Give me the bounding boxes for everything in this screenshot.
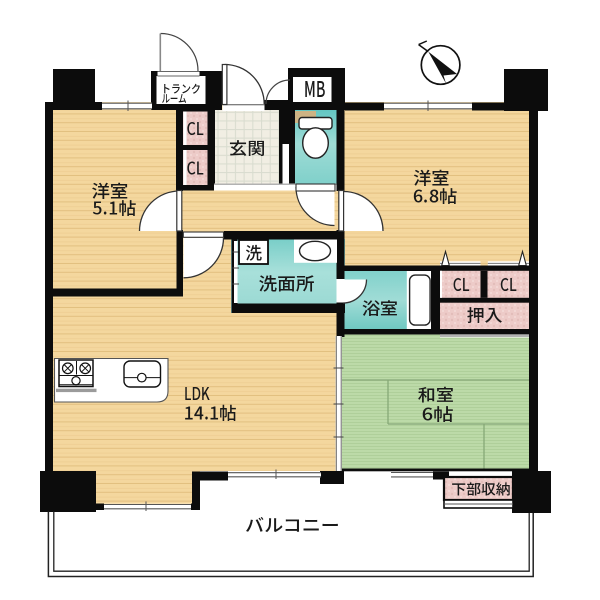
- svg-text:浴室: 浴室: [362, 295, 399, 320]
- svg-text:玄関: 玄関: [229, 135, 266, 160]
- svg-text:バルコニー: バルコニー: [245, 513, 340, 538]
- svg-text:ルーム: ルーム: [162, 91, 187, 107]
- svg-text:洗面所: 洗面所: [259, 271, 315, 296]
- svg-text:5.1帖: 5.1帖: [93, 195, 137, 220]
- svg-text:14.1帖: 14.1帖: [184, 400, 237, 425]
- svg-text:下部収納: 下部収納: [452, 479, 511, 500]
- svg-text:MB: MB: [304, 72, 326, 104]
- svg-text:CL: CL: [453, 272, 470, 297]
- svg-text:CL: CL: [500, 272, 517, 297]
- svg-text:CL: CL: [187, 115, 205, 140]
- svg-text:6.8帖: 6.8帖: [413, 183, 458, 208]
- svg-text:洗: 洗: [245, 240, 262, 264]
- svg-text:CL: CL: [187, 155, 205, 180]
- svg-text:6帖: 6帖: [422, 401, 454, 426]
- svg-text:押入: 押入: [467, 302, 503, 327]
